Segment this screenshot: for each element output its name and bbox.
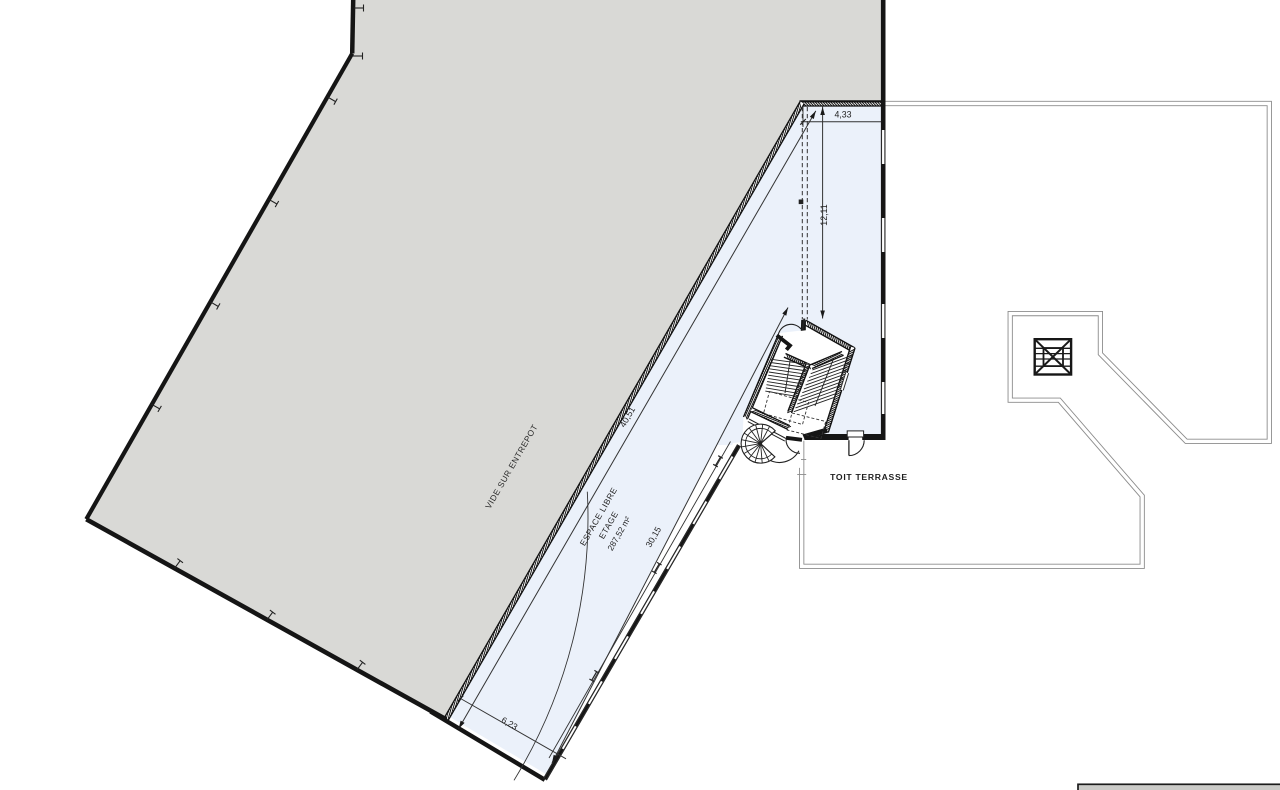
svg-text:12,11: 12,11 [819, 204, 829, 225]
svg-text:4,33: 4,33 [834, 110, 851, 120]
svg-text:TOIT TERRASSE: TOIT TERRASSE [830, 472, 908, 482]
